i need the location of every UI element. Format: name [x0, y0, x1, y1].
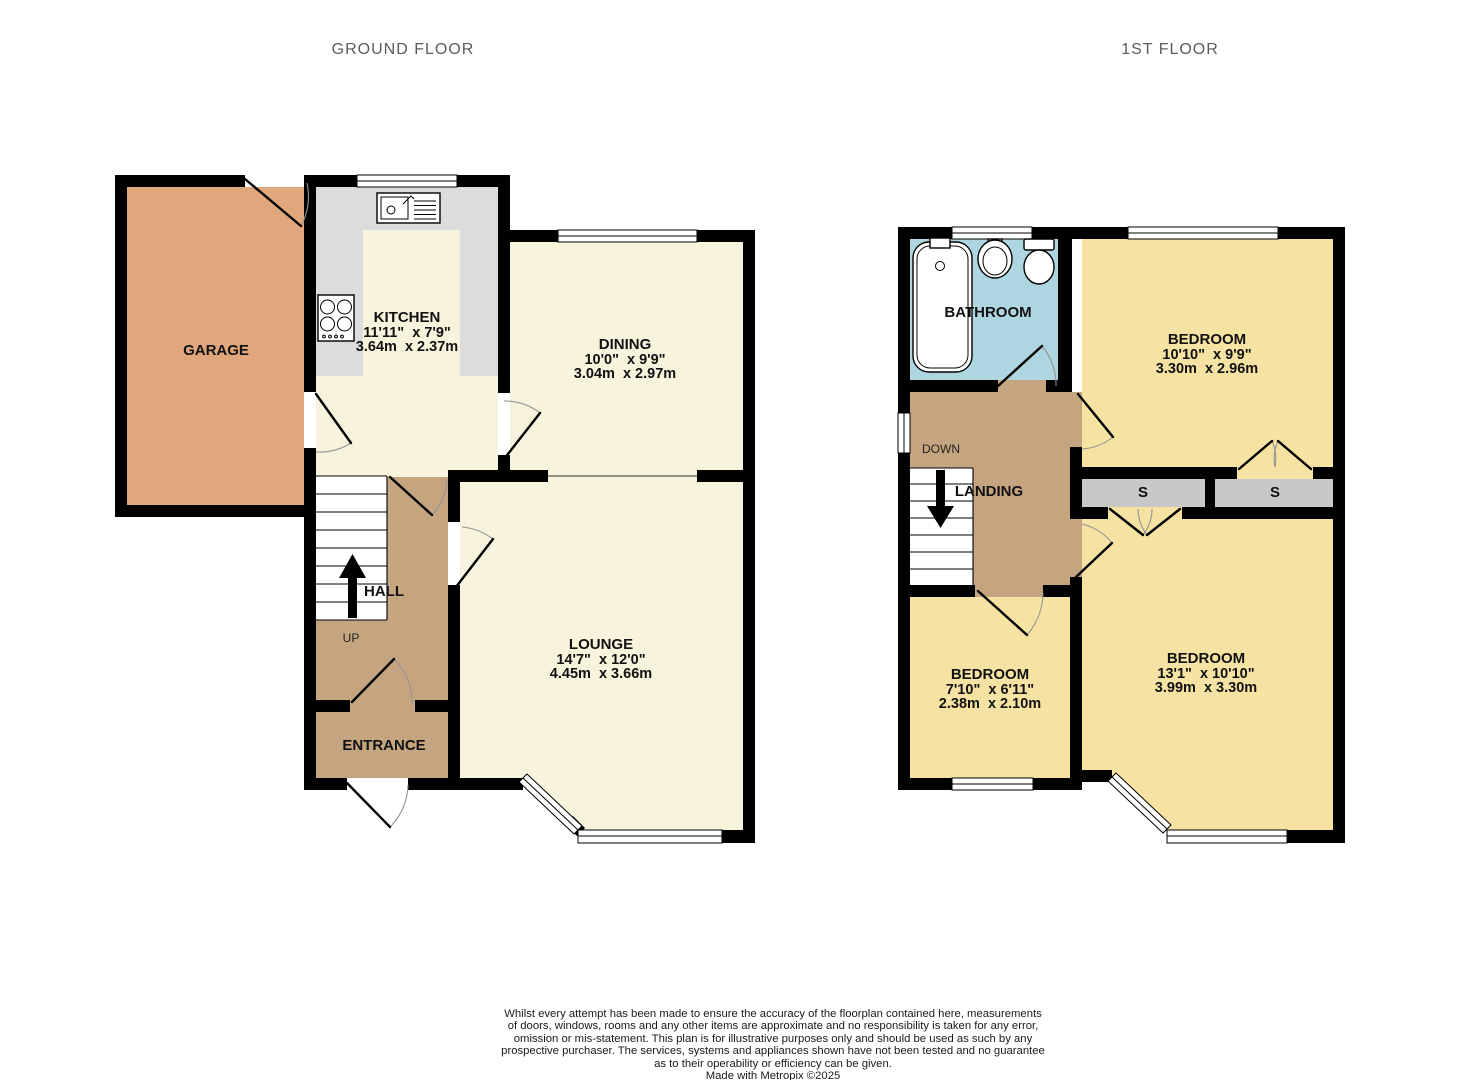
garage-label: GARAGE [183, 342, 249, 359]
disclaimer-line-1: Whilst every attempt has been made to en… [504, 1008, 1042, 1020]
landing-label: LANDING [955, 483, 1023, 500]
lounge-dim-metric: 4.45m x 3.66m [550, 666, 652, 682]
disclaimer-line-5: as to their operability or efficiency ca… [654, 1058, 892, 1070]
bedroom-small-label: BEDROOM [951, 666, 1029, 683]
dining-dim-metric: 3.04m x 2.97m [574, 366, 676, 382]
bedroom-rear-dim-metric: 3.30m x 2.96m [1156, 361, 1258, 377]
dining-window [558, 230, 697, 242]
disclaimer-line-3: omission or mis-statement. This plan is … [514, 1033, 1033, 1045]
metropix-credit: Made with Metropix ©2025 [706, 1070, 841, 1080]
up-label: UP [343, 631, 360, 645]
front-door [347, 783, 408, 827]
storage-right-label: S [1270, 484, 1280, 501]
landing-window [898, 413, 910, 453]
bedroom-rear-label: BEDROOM [1168, 331, 1246, 348]
storage-left-label: S [1138, 484, 1148, 501]
floorplan-page: GARAGE KITCHEN 11'11" x 7'9" 3.64m x 2.3… [0, 0, 1461, 1080]
bathroom-label: BATHROOM [944, 304, 1031, 321]
disclaimer-line-4: prospective purchaser. The services, sys… [501, 1045, 1045, 1057]
hall-label: HALL [364, 583, 404, 600]
basin-icon [978, 239, 1012, 278]
ground-floor-plan: GARAGE KITCHEN 11'11" x 7'9" 3.64m x 2.3… [115, 175, 755, 843]
kitchen-label: KITCHEN [374, 309, 441, 326]
first-floor-title: 1ST FLOOR [1121, 41, 1219, 58]
down-label: DOWN [922, 442, 960, 456]
bedroom-front-label: BEDROOM [1167, 650, 1245, 667]
bedroom-front-dim-metric: 3.99m x 3.30m [1155, 680, 1257, 696]
hob-icon [318, 295, 354, 341]
kitchen-dim-metric: 3.64m x 2.37m [356, 339, 458, 355]
entrance-label: ENTRANCE [342, 737, 425, 754]
kitchen-window [357, 175, 457, 187]
bedroom-small-window [952, 778, 1033, 790]
ground-floor-title: GROUND FLOOR [332, 41, 475, 58]
bathroom-window [952, 227, 1032, 239]
disclaimer-line-2: of doors, windows, rooms and any other i… [508, 1020, 1039, 1032]
first-floor-plan: BATHROOM BEDROOM 10'10" x 9'9" 3.30m x 2… [898, 227, 1345, 843]
kitchen-floor-lower [316, 376, 498, 477]
disclaimer: Whilst every attempt has been made to en… [501, 1008, 1045, 1080]
toilet-icon [1024, 239, 1054, 284]
floorplan-canvas: GARAGE KITCHEN 11'11" x 7'9" 3.64m x 2.3… [0, 0, 1461, 1080]
kitchen-sink-icon [377, 193, 440, 223]
bedroom-small-dim-metric: 2.38m x 2.10m [939, 696, 1041, 712]
lounge-label: LOUNGE [569, 636, 633, 653]
dining-label: DINING [599, 336, 652, 353]
bedroom-rear-window [1128, 227, 1278, 239]
